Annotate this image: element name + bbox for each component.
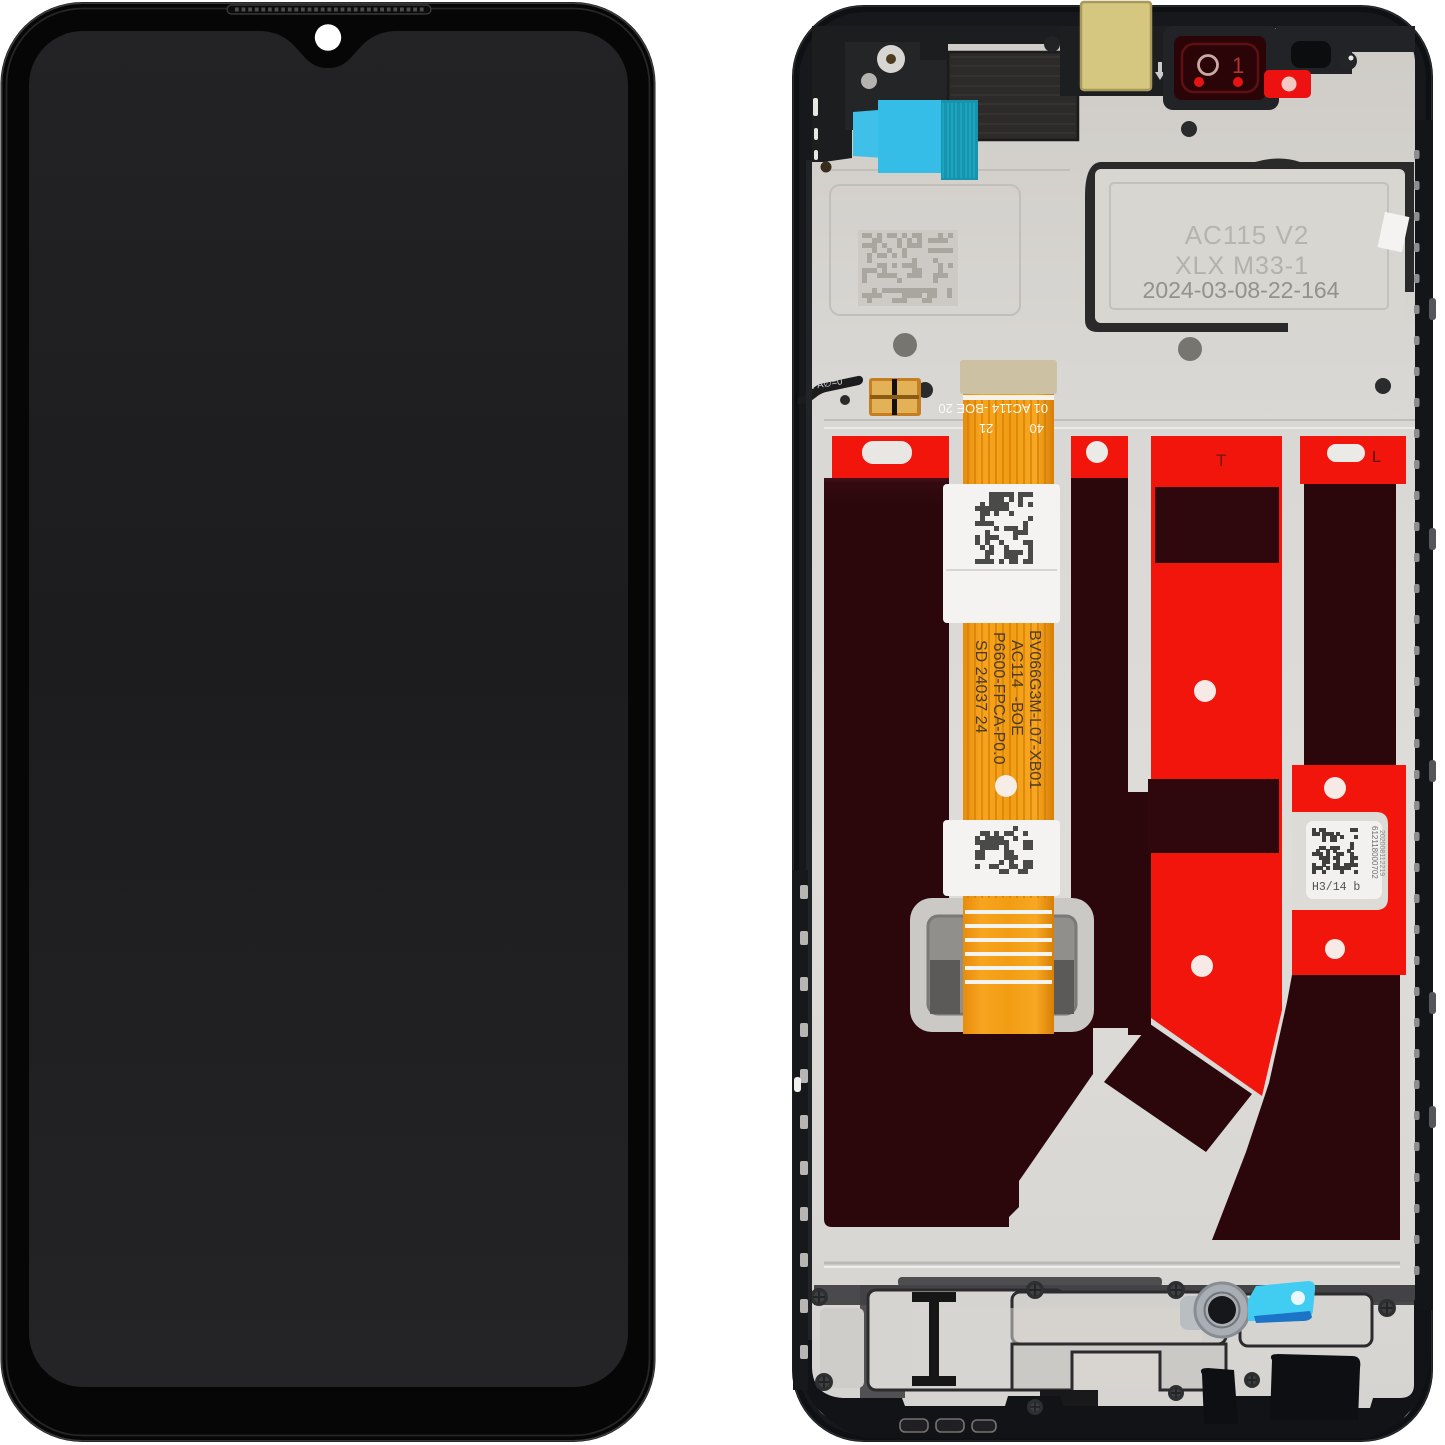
svg-text:XLX M33-1: XLX M33-1 bbox=[1175, 252, 1309, 280]
svg-text:L: L bbox=[1372, 449, 1381, 466]
svg-text:P6600-FPCA-P0.0: P6600-FPCA-P0.0 bbox=[990, 632, 1007, 765]
svg-text:AC115 V2: AC115 V2 bbox=[1185, 220, 1310, 250]
svg-text:T: T bbox=[1216, 451, 1226, 470]
svg-text:AC114 -BOE: AC114 -BOE bbox=[1008, 640, 1025, 736]
svg-text:202008112219: 202008112219 bbox=[1378, 830, 1385, 876]
svg-text:2024-03-08-22-164: 2024-03-08-22-164 bbox=[1143, 277, 1340, 303]
svg-text:H3/14 b: H3/14 b bbox=[1312, 881, 1360, 894]
svg-text:1: 1 bbox=[1232, 53, 1244, 78]
svg-text:01 AC114 -BOE 20: 01 AC114 -BOE 20 bbox=[938, 401, 1048, 416]
svg-text:612118000702: 612118000702 bbox=[1370, 826, 1379, 879]
svg-text:40 21: 40 21 bbox=[979, 421, 1044, 436]
svg-text:SD 24037 24: SD 24037 24 bbox=[972, 640, 989, 734]
svg-text:BV066G3M-L07-XB01: BV066G3M-L07-XB01 bbox=[1026, 630, 1043, 789]
